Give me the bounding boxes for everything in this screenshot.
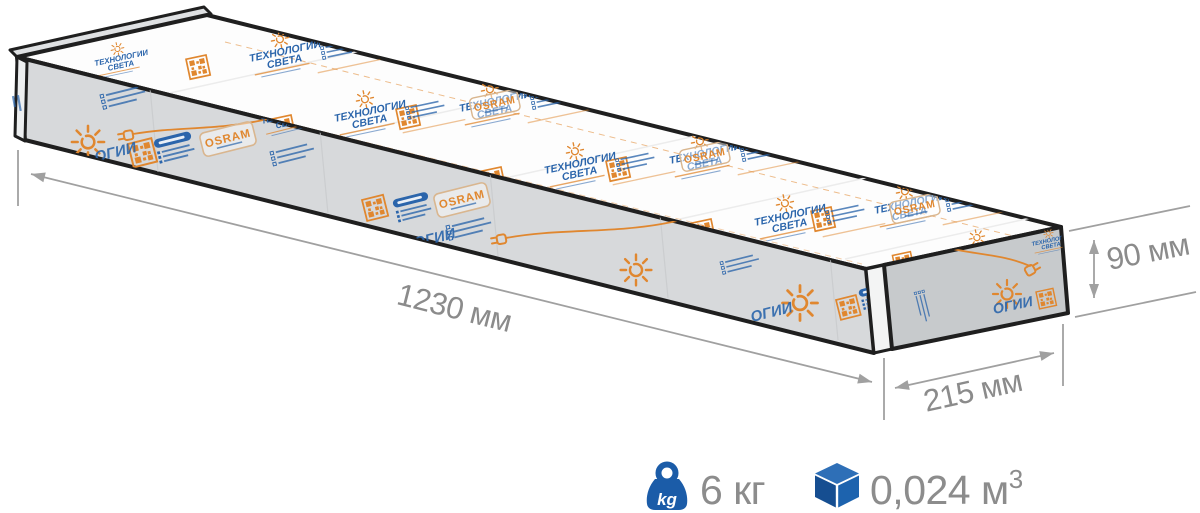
volume-value-base: 0,024 м xyxy=(870,467,1009,513)
kettlebell-kg-icon: kg xyxy=(647,465,687,511)
extension-line xyxy=(1069,206,1190,231)
weight-value: 6 кг xyxy=(700,467,765,513)
volume-value-sup: 3 xyxy=(1009,464,1023,494)
kg-icon-text: kg xyxy=(657,490,677,509)
package-box xyxy=(10,0,1117,353)
volume-value: 0,024 м3 xyxy=(870,464,1023,513)
specs-row: kg 6 кг 0,024 м3 xyxy=(647,463,1023,513)
height-label: 90 мм xyxy=(1104,227,1192,277)
dimension-height: 90 мм xyxy=(1069,206,1196,317)
cube-icon xyxy=(815,463,859,508)
box-left-cap xyxy=(15,57,27,141)
package-dimensions-figure: ТЕХНОЛОГИИ СВЕТА OSRAM ОГИИ xyxy=(0,0,1200,513)
package-illustration: ТЕХНОЛОГИИ СВЕТА OSRAM ОГИИ xyxy=(0,0,1200,513)
length-label: 1230 мм xyxy=(394,277,516,339)
